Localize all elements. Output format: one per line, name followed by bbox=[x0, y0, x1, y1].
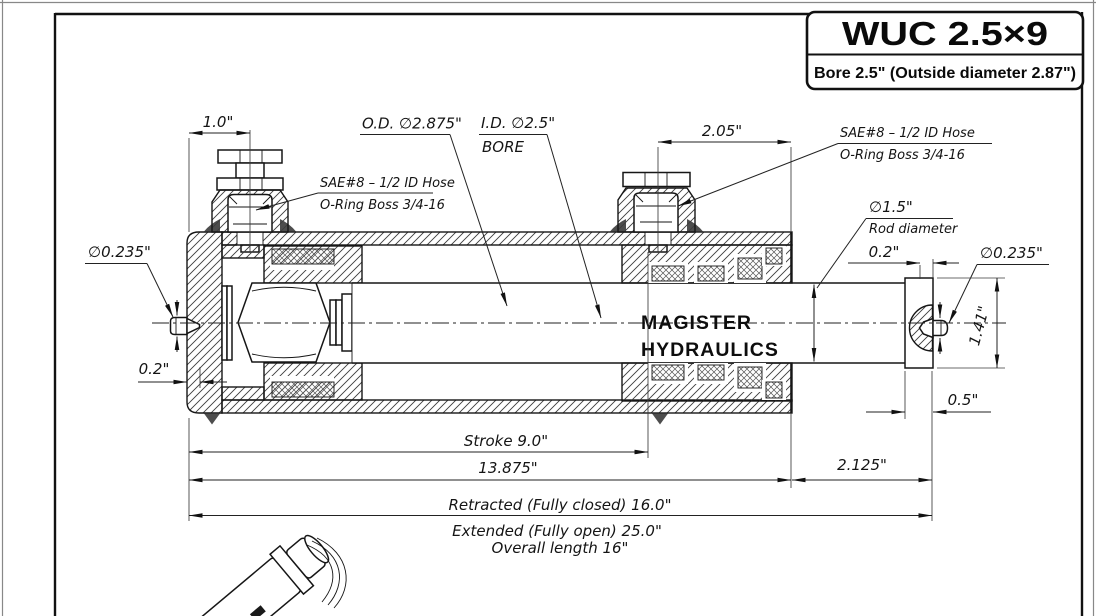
model-title: WUC 2.5×9 bbox=[842, 15, 1048, 52]
base-grease-fitting bbox=[171, 318, 188, 335]
dim-rod-end-offset: 0.2" bbox=[869, 243, 900, 261]
product-thumbnail bbox=[149, 525, 346, 616]
brand-line1: MAGISTER bbox=[641, 312, 752, 334]
cylinder-technical-drawing: WUC 2.5×9 Bore 2.5" (Outside diameter 2.… bbox=[0, 0, 1096, 616]
dim-overall: Overall length 16" bbox=[492, 539, 629, 557]
dim-port2-offset: 2.05" bbox=[702, 122, 742, 140]
dim-port1-offset: 1.0" bbox=[203, 113, 234, 131]
label-bore: BORE bbox=[482, 138, 525, 156]
piston-seal-top bbox=[272, 249, 334, 264]
dim-rod-extension: 2.125" bbox=[837, 456, 887, 474]
label-inner-diameter: I.D. ∅2.5" bbox=[481, 114, 555, 132]
label-sae-left-1: SAE#8 – 1/2 ID Hose bbox=[320, 176, 455, 191]
brand-line2: HYDRAULICS bbox=[641, 339, 779, 361]
dim-extended: Extended (Fully open) 25.0" bbox=[452, 522, 662, 540]
barrel-bottom-wall bbox=[222, 400, 792, 413]
dim-body-length: 13.875" bbox=[478, 459, 537, 477]
label-rod-diameter-text: Rod diameter bbox=[869, 222, 959, 237]
dim-rod-end-width: 1.41" bbox=[965, 304, 993, 348]
dim-pin-dia-right: ∅0.235" bbox=[980, 244, 1043, 262]
drawing-sheet: WUC 2.5×9 Bore 2.5" (Outside diameter 2.… bbox=[0, 0, 1096, 616]
dim-base-fitting-offset: 0.2" bbox=[139, 360, 170, 378]
label-sae-right-1: SAE#8 – 1/2 ID Hose bbox=[840, 126, 975, 141]
port2-fitting bbox=[618, 173, 695, 233]
label-sae-left-2: O-Ring Boss 3/4-16 bbox=[320, 198, 445, 213]
label-sae-right-2: O-Ring Boss 3/4-16 bbox=[840, 148, 965, 163]
barrel-top-wall bbox=[222, 232, 792, 245]
section-view: MAGISTER HYDRAULICS bbox=[152, 130, 1006, 425]
piston-nut bbox=[238, 283, 330, 362]
label-outer-diameter: O.D. ∅2.875" bbox=[362, 115, 462, 133]
label-rod-diameter: ∅1.5" bbox=[869, 198, 913, 216]
dim-rod-end-length: 0.5" bbox=[948, 391, 979, 409]
dim-pin-dia-left: ∅0.235" bbox=[88, 243, 151, 261]
dim-retracted: Retracted (Fully closed) 16.0" bbox=[449, 496, 672, 514]
model-subtitle: Bore 2.5" (Outside diameter 2.87") bbox=[814, 65, 1076, 82]
dim-stroke: Stroke 9.0" bbox=[464, 432, 548, 450]
title-block: WUC 2.5×9 Bore 2.5" (Outside diameter 2.… bbox=[807, 12, 1083, 89]
piston-seal-bottom bbox=[272, 382, 334, 397]
